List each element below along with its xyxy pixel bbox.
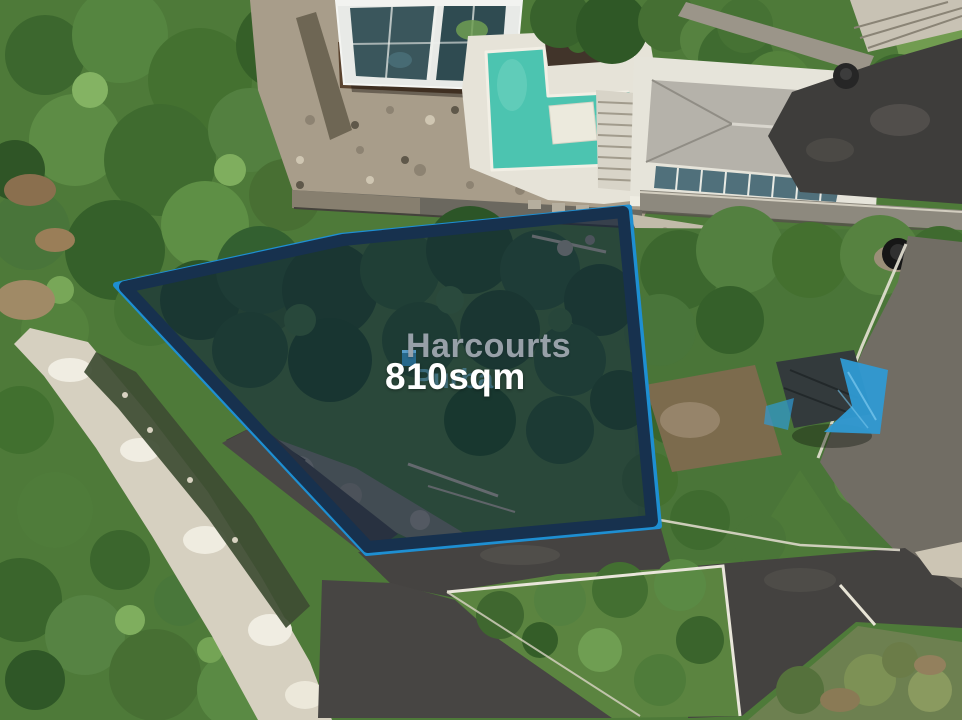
plot-area-label: 810sqm <box>385 358 526 395</box>
aerial-photo: Harcourts Purba 810sqm <box>0 0 962 720</box>
